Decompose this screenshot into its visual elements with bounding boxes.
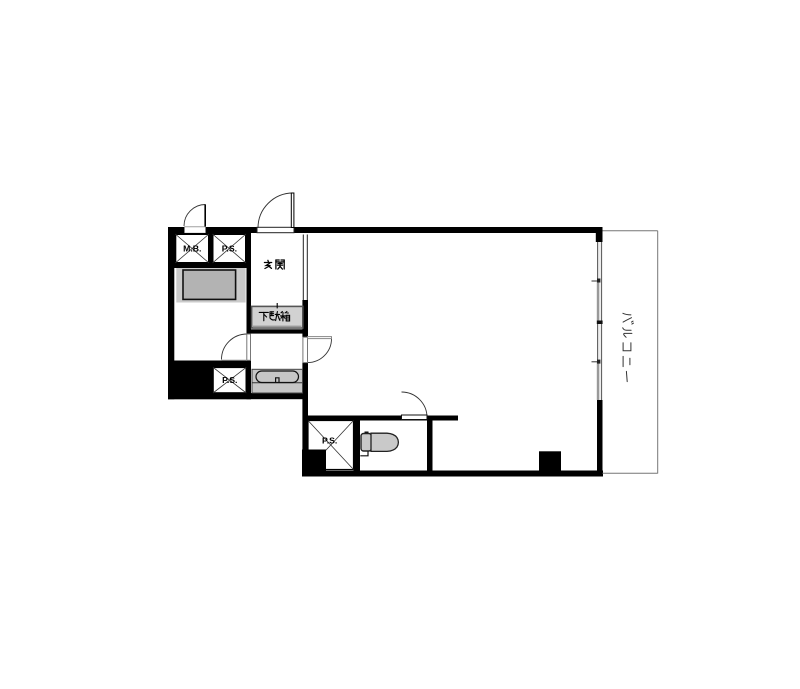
svg-text:P.S.: P.S. xyxy=(222,375,237,385)
svg-text:P.S.: P.S. xyxy=(222,244,237,254)
svg-text:P.S.: P.S. xyxy=(322,436,337,446)
svg-text:M.B.: M.B. xyxy=(183,244,201,254)
